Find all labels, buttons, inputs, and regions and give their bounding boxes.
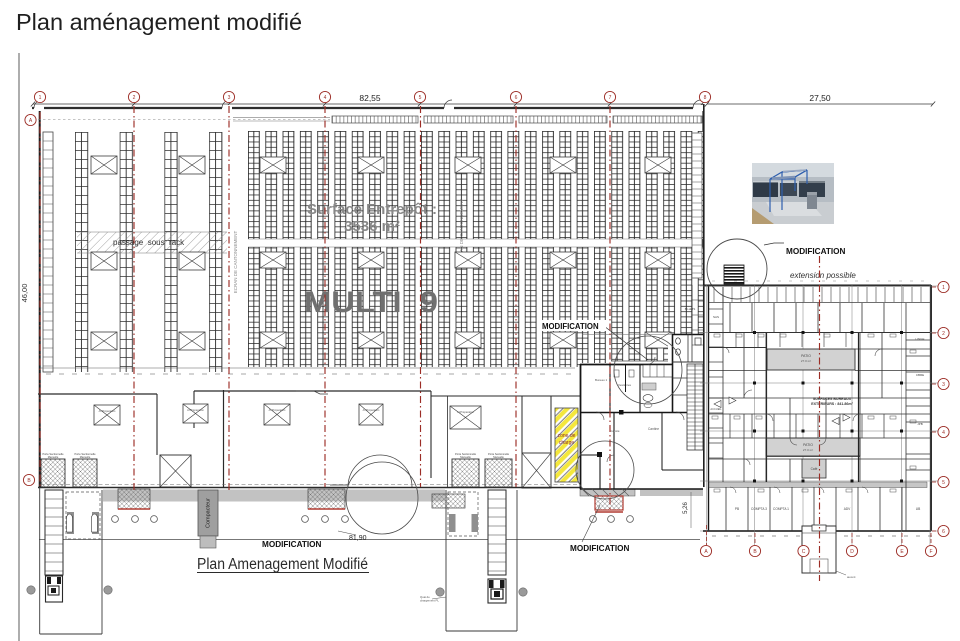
svg-text:SURFACES BUREAUX: SURFACES BUREAUX (813, 397, 852, 401)
svg-text:JPB: JPB (917, 422, 923, 426)
svg-text:Vestiaires: Vestiaires (618, 383, 632, 387)
svg-text:Compacteur: Compacteur (206, 498, 212, 528)
svg-text:2: 2 (133, 95, 136, 101)
svg-text:1: 1 (39, 95, 42, 101)
svg-text:A=Préparation: A=Préparation (187, 408, 204, 412)
svg-text:MODIFICATION: MODIFICATION (262, 540, 322, 549)
svg-text:1: 1 (942, 285, 945, 291)
svg-text:4: 4 (942, 430, 945, 436)
svg-text:zone de: zone de (558, 433, 576, 439)
svg-text:A=Préparation: A=Préparation (363, 408, 380, 412)
svg-text:MODIFICATION: MODIFICATION (542, 322, 599, 331)
svg-text:2: 2 (942, 331, 945, 337)
svg-text:5: 5 (942, 480, 945, 486)
svg-text:F: F (929, 549, 932, 555)
svg-text:46,00: 46,00 (20, 284, 29, 303)
svg-text:A=Préparation: A=Préparation (269, 408, 286, 412)
svg-text:MODIFICATION: MODIFICATION (786, 247, 846, 256)
svg-text:PATIO: PATIO (801, 354, 811, 358)
svg-text:UB: UB (916, 507, 920, 511)
svg-text:PATIO: PATIO (803, 443, 813, 447)
svg-text:27,50: 27,50 (809, 93, 831, 103)
svg-text:7: 7 (609, 95, 612, 101)
svg-text:passage sous rack: passage sous rack (113, 238, 185, 247)
svg-text:ECRAN DE CANTONNEMENT: ECRAN DE CANTONNEMENT (233, 231, 238, 294)
svg-text:27.0 m²: 27.0 m² (801, 359, 811, 363)
svg-text:EXTERIEURS : 841.86m²: EXTERIEURS : 841.86m² (811, 402, 853, 406)
svg-text:Café: Café (811, 467, 818, 471)
svg-text:3: 3 (942, 382, 945, 388)
svg-text:SAS: SAS (713, 315, 719, 319)
svg-text:Plan Amenagement Modifié: Plan Amenagement Modifié (197, 556, 368, 573)
svg-text:BILLETS: BILLETS (685, 307, 696, 311)
svg-text:charge: charge (559, 440, 575, 446)
svg-text:A=Préparation: A=Préparation (457, 410, 474, 414)
svg-text:MULTI 9: MULTI 9 (304, 286, 438, 319)
svg-text:Manuelle: Manuelle (48, 455, 59, 459)
svg-text:Surface Entrepôt :: Surface Entrepôt : (307, 201, 437, 218)
svg-text:27.0 m²: 27.0 m² (803, 448, 813, 452)
svg-text:4: 4 (324, 95, 327, 101)
svg-text:Cantine: Cantine (648, 427, 659, 431)
svg-text:Manuelle: Manuelle (80, 455, 91, 459)
svg-text:6: 6 (515, 95, 518, 101)
svg-text:6: 6 (942, 529, 945, 535)
svg-text:Bureau 1: Bureau 1 (595, 378, 608, 382)
svg-text:A=Préparation: A=Préparation (99, 409, 116, 413)
svg-text:Manuelle: Manuelle (493, 455, 504, 459)
svg-text:8: 8 (704, 95, 707, 101)
svg-text:5: 5 (419, 95, 422, 101)
svg-text:LINGE: LINGE (915, 337, 924, 341)
svg-text:CBRE: CBRE (916, 373, 924, 377)
svg-text:C: C (802, 549, 806, 555)
svg-text:81,90: 81,90 (349, 535, 367, 542)
svg-text:Manuelle: Manuelle (460, 455, 471, 459)
svg-text:ADV: ADV (844, 507, 851, 511)
svg-text:D: D (850, 549, 854, 555)
svg-text:extension possible: extension possible (790, 271, 856, 280)
svg-text:3536 m²: 3536 m² (344, 218, 400, 235)
svg-text:chargement PL: chargement PL (420, 599, 439, 603)
svg-text:3: 3 (228, 95, 231, 101)
svg-text:COMPTA 3: COMPTA 3 (751, 507, 767, 511)
svg-text:Plan aménagement modifié: Plan aménagement modifié (16, 9, 302, 35)
svg-text:PB: PB (735, 507, 739, 511)
svg-text:82,55: 82,55 (359, 93, 381, 103)
svg-text:COMPTA 1: COMPTA 1 (773, 507, 789, 511)
svg-text:Comité: Comité (610, 429, 620, 433)
svg-text:ACCUEIL: ACCUEIL (710, 407, 722, 411)
svg-text:MODIFICATION: MODIFICATION (570, 544, 630, 553)
svg-text:5,26: 5,26 (683, 502, 689, 514)
svg-text:auvent: auvent (847, 575, 856, 579)
